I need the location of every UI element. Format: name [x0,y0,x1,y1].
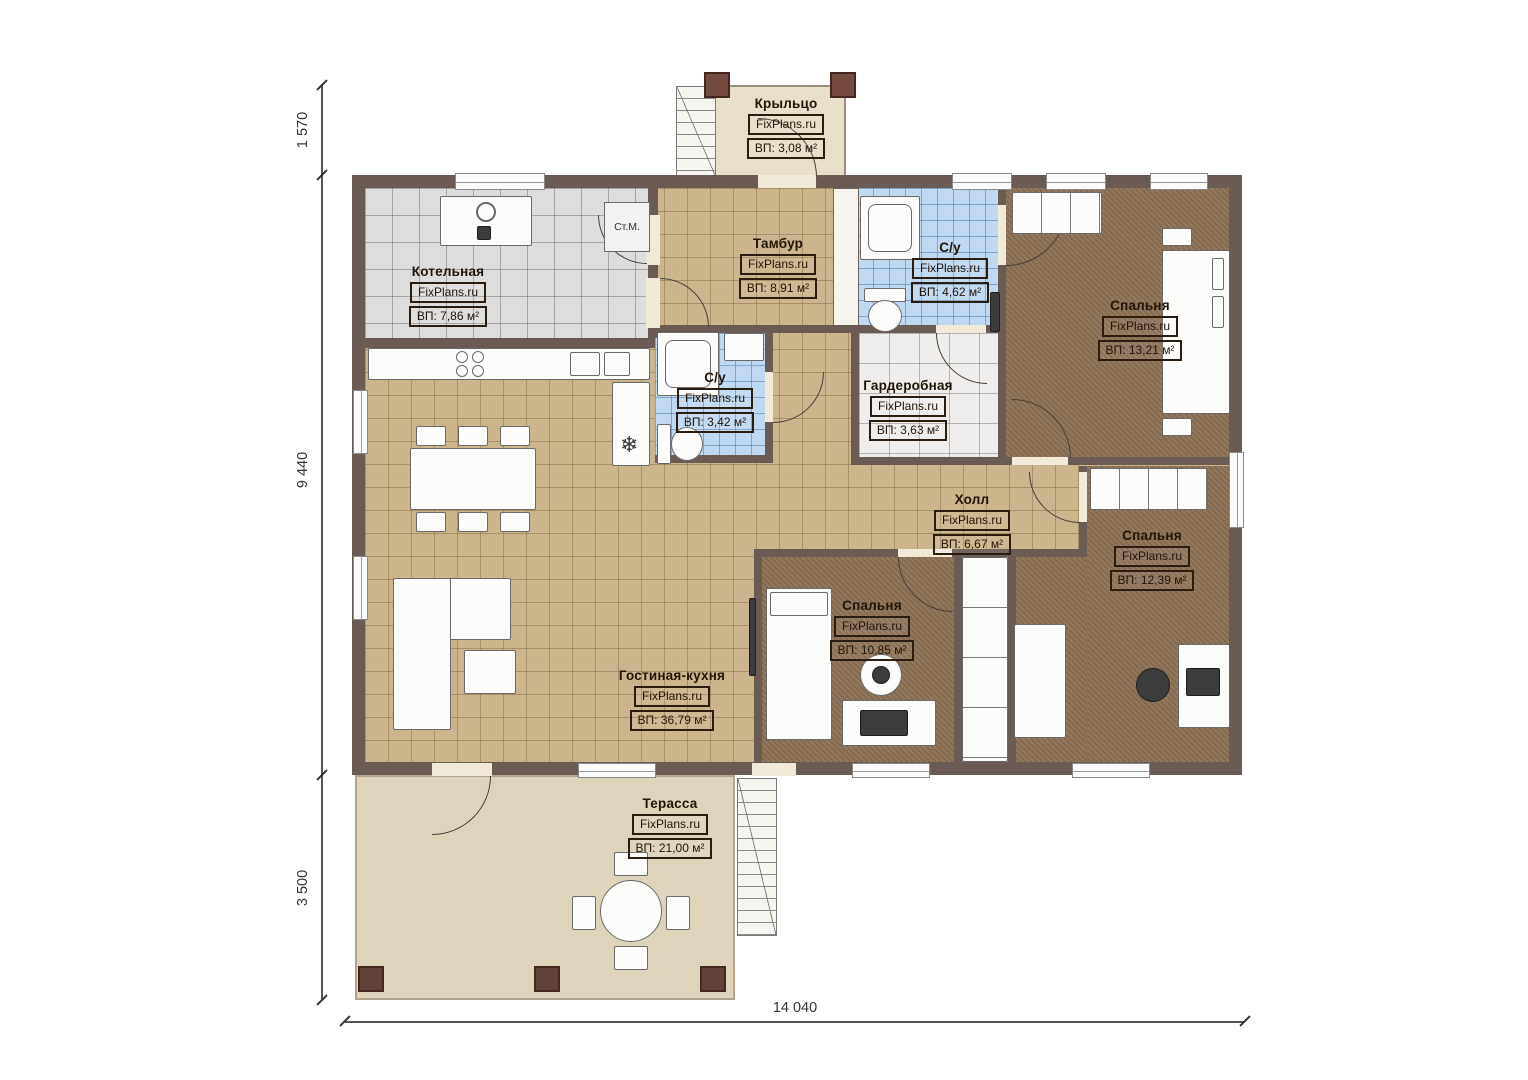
window [1229,452,1244,528]
wall [954,557,962,762]
watermark: FixPlans.ru [912,258,988,279]
wardrobe-door-gap [936,325,986,333]
small-sofa [1014,624,1066,738]
room-name: Гардеробная [863,378,953,393]
left-dimension-line [321,85,323,1000]
dining-chair [416,426,446,446]
stove-burner [456,365,468,377]
window [1150,173,1208,190]
porch-stairs [676,86,716,176]
dim-total-width: 14 040 [773,1000,817,1016]
room-name: С/у [704,370,726,385]
room-area: ВП: 13,21 м² [1098,340,1183,361]
office-chair [1136,668,1170,702]
bedroom-1239-door-gap [1079,472,1087,522]
room-area: ВП: 21,00 м² [628,838,713,859]
room-area: ВП: 7,86 м² [409,306,487,327]
printer [860,710,908,736]
watermark: FixPlans.ru [934,510,1010,531]
porch-post [704,72,730,98]
room-label-porch: Крыльцо FixPlans.ru ВП: 3,08 м² [716,96,856,159]
room-area: ВП: 8,91 м² [739,278,817,299]
terrace-chair [572,896,596,930]
room-area: ВП: 4,62 м² [911,282,989,303]
watermark: FixPlans.ru [634,686,710,707]
dining-chair [458,426,488,446]
room-label-bedroom-1239: Спальня FixPlans.ru ВП: 12,39 м² [1087,528,1217,591]
laptop [1186,668,1220,696]
dim-porch-depth: 1 570 [295,112,311,148]
watermark: FixPlans.ru [870,396,946,417]
stove-burner [472,351,484,363]
washing-machine: Ст.М. [604,202,650,252]
nightstand [1162,418,1192,436]
wall [851,457,1006,465]
room-name: Тамбур [753,236,803,251]
room-name: Терасса [643,796,698,811]
window [1072,763,1150,778]
dim-house-depth: 9 440 [295,452,311,488]
watermark: FixPlans.ru [677,388,753,409]
room-label-terrace: Терасса FixPlans.ru ВП: 21,00 м² [605,796,735,859]
dining-chair [500,426,530,446]
watermark: FixPlans.ru [410,282,486,303]
terrace-table [600,880,662,942]
boiler-unit [476,202,496,222]
room-name: Спальня [842,598,902,613]
nightstand [1162,228,1192,246]
terrace-exit-gap [752,763,796,776]
terrace-stairs [737,778,777,936]
dining-chair [416,512,446,532]
room-label-bedroom-1085: Спальня FixPlans.ru ВП: 10,85 м² [807,598,937,661]
wall [655,455,773,463]
wall [365,338,655,348]
closet-row [1090,468,1208,510]
room-name: Спальня [1122,528,1182,543]
window [1046,173,1106,190]
bedroom-1321-door-gap [1012,457,1068,465]
room-area: ВП: 12,39 м² [1110,570,1195,591]
room-label-bathroom-462: С/у FixPlans.ru ВП: 4,62 м² [885,240,1015,303]
porch-post [830,72,856,98]
toilet-bowl [868,300,902,332]
terrace-post [358,966,384,992]
pillow [1212,296,1224,328]
room-label-living-kitchen: Гостиная-кухня FixPlans.ru ВП: 36,79 м² [592,668,752,731]
terrace-chair [614,946,648,970]
dining-chair [500,512,530,532]
watermark: FixPlans.ru [834,616,910,637]
room-label-wardrobe: Гардеробная FixPlans.ru ВП: 3,63 м² [843,378,973,441]
window [353,556,368,620]
closet-row [1012,192,1102,234]
stove-burner [472,365,484,377]
stove-burner [456,351,468,363]
room-area: ВП: 10,85 м² [830,640,915,661]
kitchen-sink-drainer [604,352,630,376]
room-area: ВП: 6,67 м² [933,534,1011,555]
window [952,173,1012,190]
coffee-table [464,650,516,694]
snowflake-icon: ❄ [620,434,638,456]
window [455,173,545,190]
office-chair-seat [872,666,890,684]
bottom-dimension-line [345,1021,1245,1023]
washbasin [724,333,764,361]
dining-chair [458,512,488,532]
kitchen-sink [570,352,600,376]
room-name: Котельная [412,264,484,279]
built-in-closet [962,557,1008,762]
window [578,763,656,778]
room-label-hall: Холл FixPlans.ru ВП: 6,67 м² [907,492,1037,555]
room-area: ВП: 36,79 м² [630,710,715,731]
window [852,763,930,778]
terrace-post [700,966,726,992]
boiler-equipment [477,226,491,240]
terrace-door-gap [432,763,492,776]
dim-terrace-depth: 3 500 [295,870,311,906]
room-name: Крыльцо [755,96,818,111]
room-area: ВП: 3,42 м² [676,412,754,433]
terrace-post [534,966,560,992]
room-label-boiler: Котельная FixPlans.ru ВП: 7,86 м² [383,264,513,327]
watermark: FixPlans.ru [1114,546,1190,567]
floor-plan-canvas: 1 570 9 440 3 500 14 040 [0,0,1528,1080]
room-area: ВП: 3,08 м² [747,138,825,159]
watermark: FixPlans.ru [740,254,816,275]
tambour-door-gap [646,278,660,328]
watermark: FixPlans.ru [1102,316,1178,337]
terrace-chair [666,896,690,930]
room-name: С/у [939,240,961,255]
room-label-bathroom-342: С/у FixPlans.ru ВП: 3,42 м² [650,370,780,433]
room-label-tambour: Тамбур FixPlans.ru ВП: 8,91 м² [713,236,843,299]
window [353,390,368,454]
sofa-section [393,578,451,730]
room-name: Спальня [1110,298,1170,313]
room-label-bedroom-1321: Спальня FixPlans.ru ВП: 13,21 м² [1075,298,1205,361]
tv [749,598,756,676]
room-name: Холл [955,492,990,507]
watermark: FixPlans.ru [632,814,708,835]
pillow [1212,258,1224,290]
room-area: ВП: 3,63 м² [869,420,947,441]
room-name: Гостиная-кухня [619,668,725,683]
watermark: FixPlans.ru [748,114,824,135]
dining-table [410,448,536,510]
